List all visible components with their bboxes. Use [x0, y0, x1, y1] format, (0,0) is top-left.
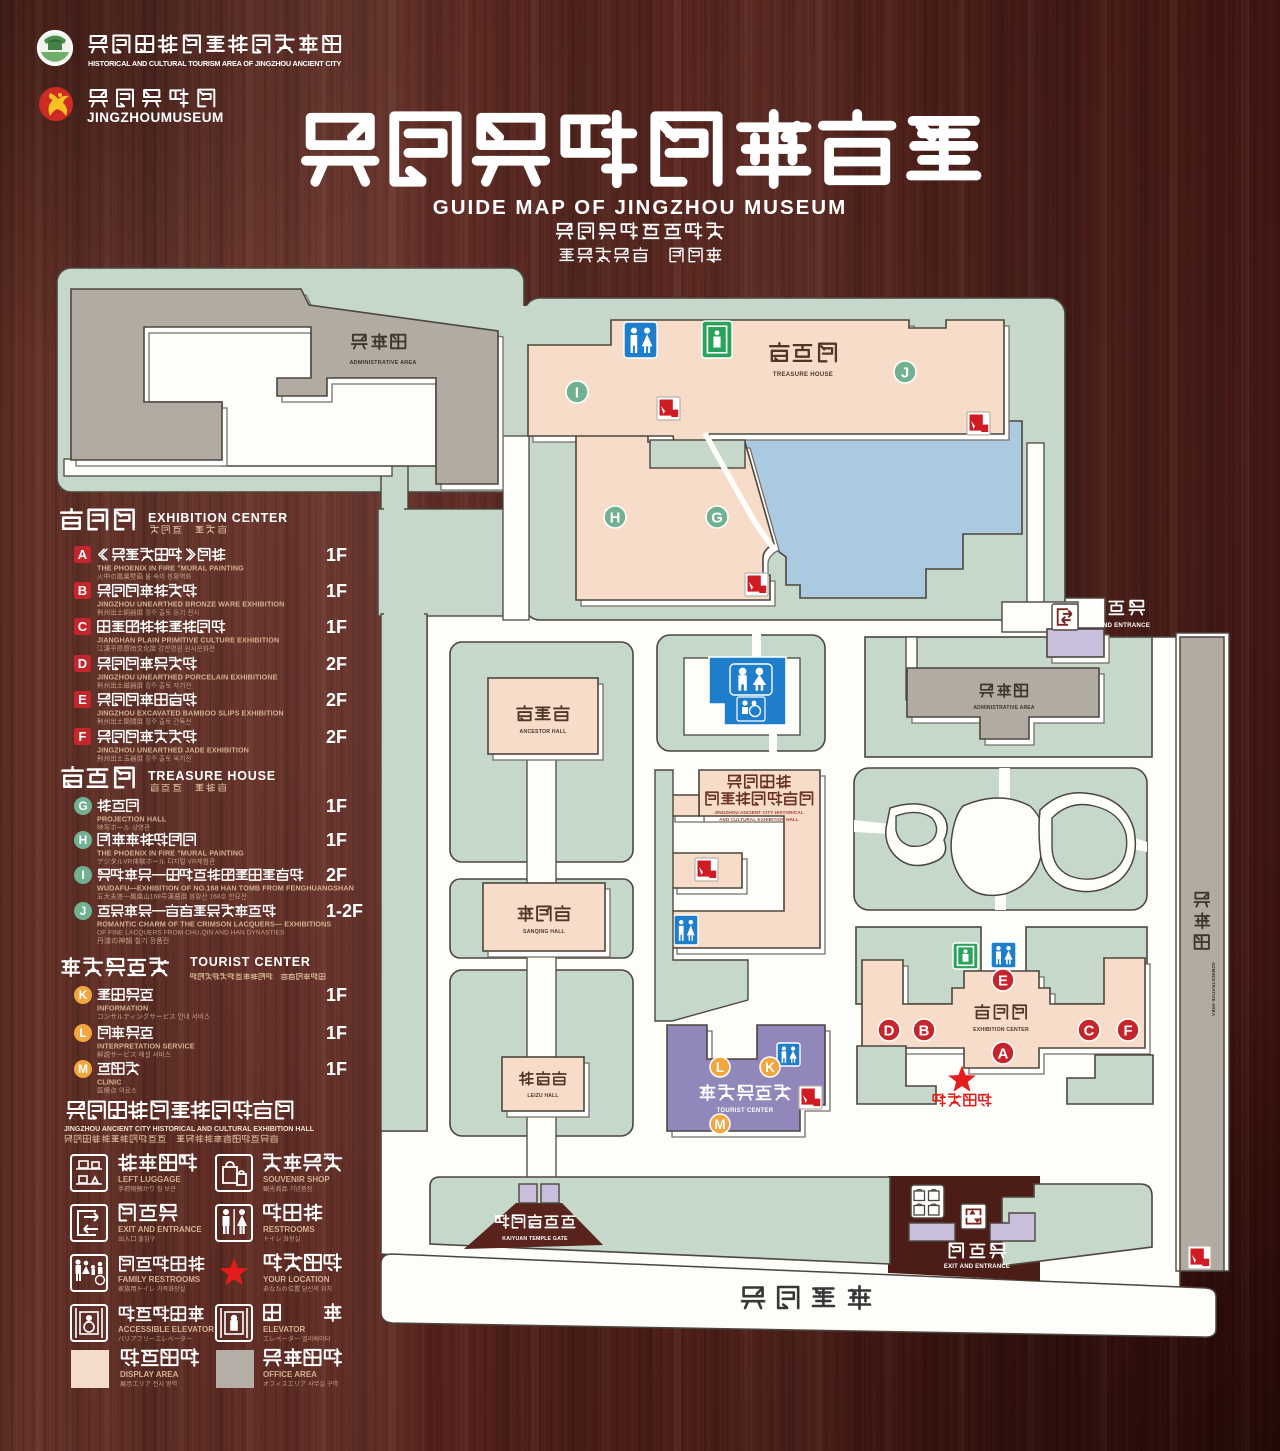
- svg-text:A: A: [78, 547, 88, 562]
- svg-text:YOUR LOCATION: YOUR LOCATION: [263, 1275, 330, 1284]
- svg-text:2F: 2F: [326, 654, 347, 674]
- svg-text:C: C: [78, 619, 88, 634]
- svg-text:1F: 1F: [326, 1023, 347, 1043]
- svg-text:JINGZHOU UNEARTHED PORCELAIN E: JINGZHOU UNEARTHED PORCELAIN EXHIBITIONE: [97, 673, 278, 682]
- svg-text:L: L: [79, 1026, 86, 1040]
- svg-text:荆州出土銅器展 징주 출토 동기 전시: 荆州出土銅器展 징주 출토 동기 전시: [97, 608, 199, 617]
- svg-text:ADMINISTRATIVE AREA: ADMINISTRATIVE AREA: [973, 705, 1034, 711]
- svg-text:荆州出土簡牘展 징주 출토 간독전: 荆州出土簡牘展 징주 출토 간독전: [97, 717, 191, 726]
- svg-text:荆州出土玉器展 징주 출토 옥기전: 荆州出土玉器展 징주 출토 옥기전: [97, 754, 191, 763]
- svg-text:OFFICE AREA: OFFICE AREA: [263, 1370, 317, 1379]
- svg-text:THE PHOENIX IN FIRE "MURAL PAI: THE PHOENIX IN FIRE "MURAL PAINTING: [97, 849, 244, 858]
- svg-text:GUIDE MAP OF JINGZHOU MUSEUM: GUIDE MAP OF JINGZHOU MUSEUM: [433, 196, 847, 219]
- svg-text:ADMINISTRATIVE AREA: ADMINISTRATIVE AREA: [1211, 962, 1216, 1017]
- svg-text:G: G: [78, 799, 87, 813]
- svg-text:家族用トイレ 가족화장실: 家族用トイレ 가족화장실: [118, 1285, 186, 1293]
- svg-text:CLINIC: CLINIC: [97, 1078, 122, 1087]
- svg-text:TREASURE HOUSE: TREASURE HOUSE: [773, 372, 833, 378]
- svg-text:医療点 의료소: 医療点 의료소: [97, 1086, 137, 1095]
- svg-text:映写ホール 상영관: 映写ホール 상영관: [97, 823, 150, 832]
- svg-text:INTERPRETATION SERVICE: INTERPRETATION SERVICE: [97, 1042, 195, 1051]
- svg-text:EXIT AND ENTRANCE: EXIT AND ENTRANCE: [944, 1264, 1010, 1270]
- svg-text:AND CULTURAL EXHIBITION HALL: AND CULTURAL EXHIBITION HALL: [719, 817, 799, 822]
- svg-text:1F: 1F: [326, 985, 347, 1005]
- svg-text:G: G: [711, 510, 723, 526]
- svg-text:あなたの位置 당신의 위치: あなたの位置 당신의 위치: [263, 1285, 332, 1293]
- svg-text:手荷物預かり 짐 보관: 手荷物預かり 짐 보관: [118, 1185, 176, 1193]
- svg-text:EXIT AND ENTRANCE: EXIT AND ENTRANCE: [1082, 622, 1150, 629]
- svg-text:KAIYUAN TEMPLE GATE: KAIYUAN TEMPLE GATE: [502, 1236, 568, 1242]
- svg-text:エレベーター 엘리베이터: エレベーター 엘리베이터: [263, 1335, 330, 1343]
- svg-text:D: D: [884, 1023, 895, 1039]
- svg-text:LEFT LUGGAGE: LEFT LUGGAGE: [118, 1175, 181, 1184]
- svg-text:H: H: [79, 833, 88, 847]
- svg-text:JINGZHOU ANCIENT CITY HISTORIC: JINGZHOU ANCIENT CITY HISTORICAL: [714, 810, 803, 815]
- svg-text:THE PHOENIX IN FIRE "MURAL PAI: THE PHOENIX IN FIRE "MURAL PAINTING: [97, 564, 244, 573]
- svg-text:I: I: [81, 868, 84, 882]
- svg-text:M: M: [78, 1062, 88, 1076]
- svg-text:2F: 2F: [326, 727, 347, 747]
- svg-text:SANQING HALL: SANQING HALL: [523, 929, 566, 935]
- svg-text:PROJECTION HALL: PROJECTION HALL: [97, 815, 167, 824]
- svg-text:荆州出土磁器展 징주 출토 자기전: 荆州出土磁器展 징주 출토 자기전: [97, 681, 191, 690]
- svg-text:OF FINE LACQUERS FROM CHU,QIN: OF FINE LACQUERS FROM CHU,QIN AND HAN DY…: [97, 930, 285, 937]
- svg-text:WUDAFU—EXHIBITION OF NO.168 HA: WUDAFU—EXHIBITION OF NO.168 HAN TOMB FRO…: [97, 884, 354, 893]
- svg-text:丹漆の神韻 칠기 정품전: 丹漆の神韻 칠기 정품전: [97, 936, 169, 945]
- svg-text:展示エリア 전시 영역: 展示エリア 전시 영역: [120, 1380, 177, 1388]
- svg-text:EXIT AND ENTRANCE: EXIT AND ENTRANCE: [118, 1225, 202, 1234]
- svg-text:C: C: [1084, 1023, 1095, 1039]
- svg-text:RESTROOMS: RESTROOMS: [263, 1225, 315, 1234]
- svg-text:F: F: [79, 729, 87, 744]
- svg-text:1F: 1F: [326, 1059, 347, 1079]
- svg-text:1-2F: 1-2F: [326, 901, 363, 921]
- svg-text:M: M: [714, 1117, 725, 1132]
- svg-text:1F: 1F: [326, 617, 347, 637]
- svg-text:ROMANTIC CHARM OF THE CRIMSON: ROMANTIC CHARM OF THE CRIMSON LACQUERS— …: [97, 920, 331, 929]
- svg-text:火中の鳳凰壁画 불 속의 봉황벽화: 火中の鳳凰壁画 불 속의 봉황벽화: [97, 572, 191, 581]
- svg-text:SOUVENIR SHOP: SOUVENIR SHOP: [263, 1175, 330, 1184]
- svg-text:JIANGHAN PLAIN PRIMITIVE CULTU: JIANGHAN PLAIN PRIMITIVE CULTURE EXHIBIT…: [97, 636, 279, 645]
- svg-text:オフィスエリア 사무실 구역: オフィスエリア 사무실 구역: [263, 1380, 338, 1388]
- svg-text:HISTORICAL AND CULTURAL TOURIS: HISTORICAL AND CULTURAL TOURISM AREA OF …: [88, 59, 342, 68]
- svg-text:1F: 1F: [326, 830, 347, 850]
- svg-text:F: F: [1123, 1023, 1132, 1039]
- svg-text:ELEVATOR: ELEVATOR: [263, 1325, 305, 1334]
- svg-text:JINGZHOU EXCAVATED BAMBOO SLIP: JINGZHOU EXCAVATED BAMBOO SLIPS EXHIBITI…: [97, 709, 284, 718]
- svg-text:デジタルVR体験ホール 디지털 VR체험관: デジタルVR体験ホール 디지털 VR체험관: [97, 857, 215, 866]
- svg-text:D: D: [78, 656, 87, 671]
- svg-text:解説サービス 해설 서비스: 解説サービス 해설 서비스: [97, 1050, 171, 1059]
- svg-text:K: K: [79, 988, 88, 1002]
- svg-text:1F: 1F: [326, 545, 347, 565]
- svg-text:TOURIST CENTER: TOURIST CENTER: [190, 955, 311, 969]
- svg-text:観光商品 기념품점: 観光商品 기념품점: [263, 1185, 312, 1193]
- svg-text:1F: 1F: [326, 581, 347, 601]
- svg-text:B: B: [78, 583, 87, 598]
- svg-text:LEIZU HALL: LEIZU HALL: [527, 1093, 558, 1099]
- svg-text:TREASURE HOUSE: TREASURE HOUSE: [148, 769, 276, 783]
- svg-text:ACCESSIBLE ELEVATOR: ACCESSIBLE ELEVATOR: [118, 1325, 214, 1334]
- svg-text:五大夫遂—鳳凰山168号漢墓展 봉황산 168호 한묘전: 五大夫遂—鳳凰山168号漢墓展 봉황산 168호 한묘전: [97, 892, 247, 901]
- svg-text:A: A: [998, 1046, 1009, 1062]
- svg-text:2F: 2F: [326, 865, 347, 885]
- svg-text:トイレ 화장실: トイレ 화장실: [263, 1235, 301, 1243]
- svg-text:I: I: [575, 385, 579, 401]
- svg-text:J: J: [901, 365, 909, 381]
- svg-text:E: E: [998, 973, 1008, 989]
- svg-text:EXHIBITION CENTER: EXHIBITION CENTER: [148, 511, 288, 525]
- svg-text:E: E: [78, 692, 87, 707]
- svg-text:バリアフリーエレベーター: バリアフリーエレベーター: [118, 1335, 192, 1343]
- svg-text:1F: 1F: [326, 796, 347, 816]
- svg-text:JINGZHOU UNEARTHED JADE EXHIBI: JINGZHOU UNEARTHED JADE EXHIBITION: [97, 746, 249, 755]
- svg-text:ANCESTOR HALL: ANCESTOR HALL: [520, 729, 568, 735]
- svg-text:JINGZHOUMUSEUM: JINGZHOUMUSEUM: [87, 110, 224, 125]
- svg-text:FAMILY RESTROOMS: FAMILY RESTROOMS: [118, 1275, 201, 1284]
- svg-text:江漢平原原始文化展 강한평원 원시문화전: 江漢平原原始文化展 강한평원 원시문화전: [97, 644, 215, 653]
- svg-text:DISPLAY AREA: DISPLAY AREA: [120, 1370, 179, 1379]
- svg-text:2F: 2F: [326, 690, 347, 710]
- svg-text:K: K: [765, 1060, 775, 1075]
- svg-text:出入口 출입구: 出入口 출입구: [118, 1235, 156, 1243]
- svg-text:H: H: [610, 510, 621, 526]
- svg-text:B: B: [919, 1023, 930, 1039]
- svg-text:INFORMATION: INFORMATION: [97, 1004, 148, 1013]
- svg-text:TOURIST CENTER: TOURIST CENTER: [717, 1108, 774, 1114]
- svg-text:L: L: [716, 1060, 724, 1075]
- svg-text:ADMINISTRATIVE AREA: ADMINISTRATIVE AREA: [349, 360, 416, 366]
- svg-text:EXHIBITION CENTER: EXHIBITION CENTER: [973, 1027, 1029, 1033]
- svg-text:J: J: [80, 904, 87, 918]
- svg-text:コンサルティングサービス 안내 서비스: コンサルティングサービス 안내 서비스: [97, 1012, 210, 1021]
- svg-text:JINGZHOU UNEARTHED BRONZE WARE: JINGZHOU UNEARTHED BRONZE WARE EXHIBITIO…: [97, 600, 284, 609]
- svg-text:JINGZHOU ANCIENT CITY HISTORIC: JINGZHOU ANCIENT CITY HISTORICAL AND CUL…: [64, 1126, 315, 1133]
